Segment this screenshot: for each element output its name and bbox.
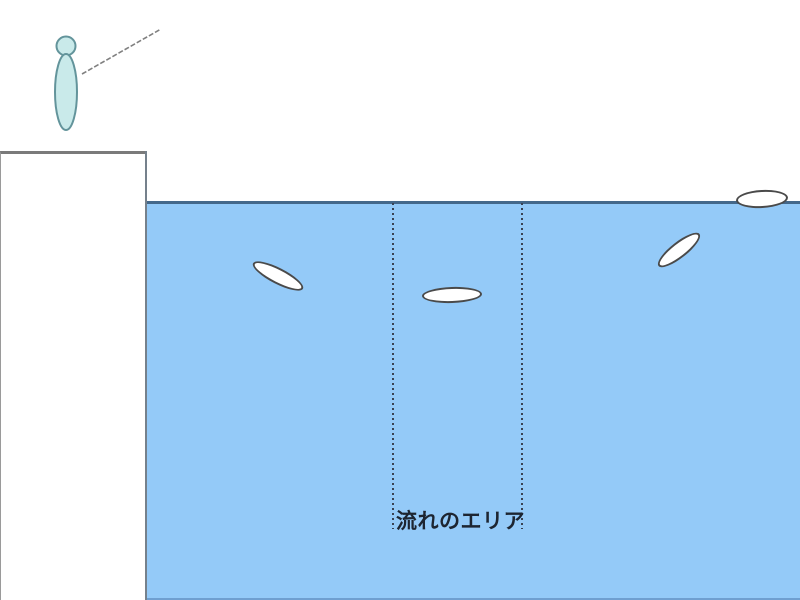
flow-area-right-boundary [521, 203, 523, 529]
shore-edge-line [145, 151, 147, 600]
fishing-flow-diagram: 流れのエリア [0, 0, 800, 600]
fishing-rod-line [82, 29, 161, 74]
flow-area-left-boundary [392, 203, 394, 529]
angler-head-icon [57, 37, 76, 56]
flow-area-label: 流れのエリア [396, 505, 525, 535]
water-area [147, 201, 800, 600]
shore-land [0, 151, 147, 600]
angler-figure [40, 15, 180, 140]
angler-body-icon [55, 54, 77, 130]
